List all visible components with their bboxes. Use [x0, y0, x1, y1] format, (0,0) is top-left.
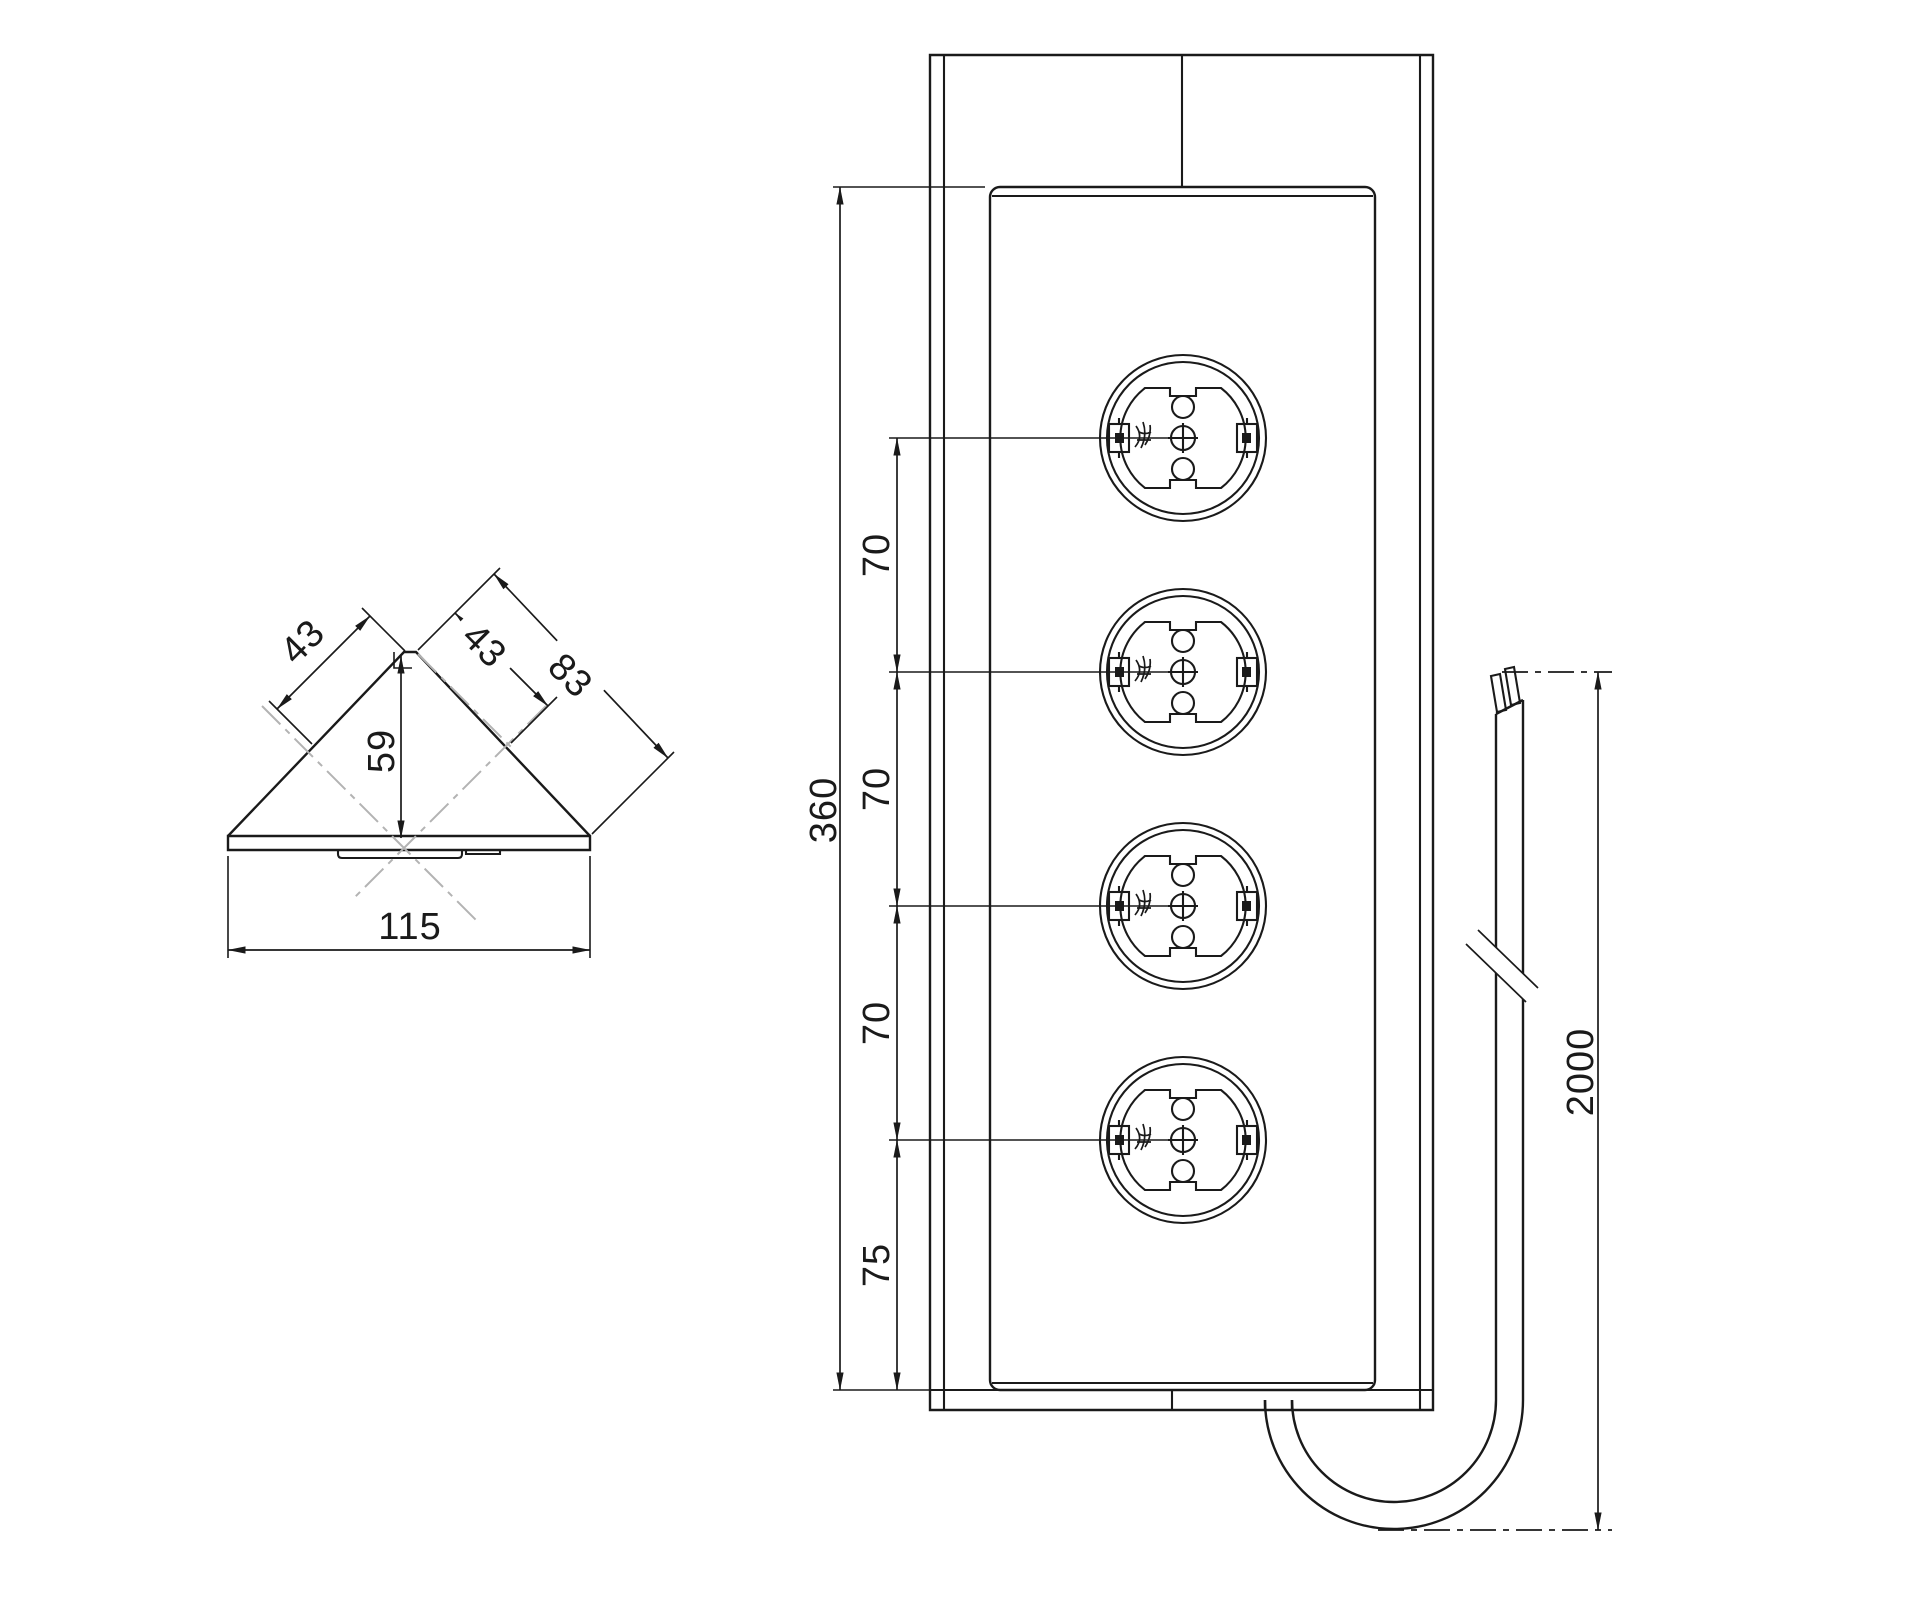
side-view: 43 43 83 59 [228, 568, 674, 958]
front-panel [990, 187, 1375, 1390]
dim-bottom-spacing: 75 [856, 1243, 898, 1287]
side-profile-outline [228, 652, 590, 858]
dim-height-label: 59 [361, 729, 403, 773]
dim-face-right-upper: 43 [445, 607, 523, 685]
side-centerlines [262, 654, 546, 921]
power-cable: 2000 [1265, 667, 1612, 1530]
front-view: 360 70 70 70 75 [803, 55, 1433, 1410]
dim-socket-spacing-3: 70 [856, 1001, 898, 1045]
dim-socket-spacing-2: 70 [856, 767, 898, 811]
socket-center-leader-lines [889, 438, 1183, 1140]
side-dimensions: 43 43 83 59 [228, 568, 674, 958]
dim-cable-length-label: 2000 [1560, 1028, 1602, 1117]
dim-bottom-spacing-label: 75 [856, 1243, 898, 1287]
dim-socket-spacing-2-label: 70 [856, 767, 898, 811]
dim-face-left: 43 [264, 603, 342, 681]
dim-panel-length: 360 [803, 777, 845, 843]
front-dimensions: 360 70 70 70 75 [803, 187, 985, 1390]
sockets [1100, 355, 1266, 1223]
dim-height: 59 [361, 729, 403, 773]
dim-base-width: 115 [378, 906, 442, 948]
corner-socket-technical-drawing: 43 43 83 59 [0, 0, 1920, 1600]
cable-break-icon [1466, 930, 1538, 1002]
dim-socket-spacing-3-label: 70 [856, 1001, 898, 1045]
dim-base-width-label: 115 [378, 906, 442, 948]
dim-cable-length: 2000 [1560, 1028, 1602, 1117]
housing-outline [930, 55, 1433, 1410]
technical-drawing-page: 43 43 83 59 [0, 0, 1920, 1600]
dim-socket-spacing-1-label: 70 [856, 533, 898, 577]
dim-socket-spacing-1: 70 [856, 533, 898, 577]
cable-outline [1265, 667, 1538, 1529]
dim-panel-length-label: 360 [803, 777, 845, 843]
dim-face-right-full: 83 [531, 637, 609, 715]
